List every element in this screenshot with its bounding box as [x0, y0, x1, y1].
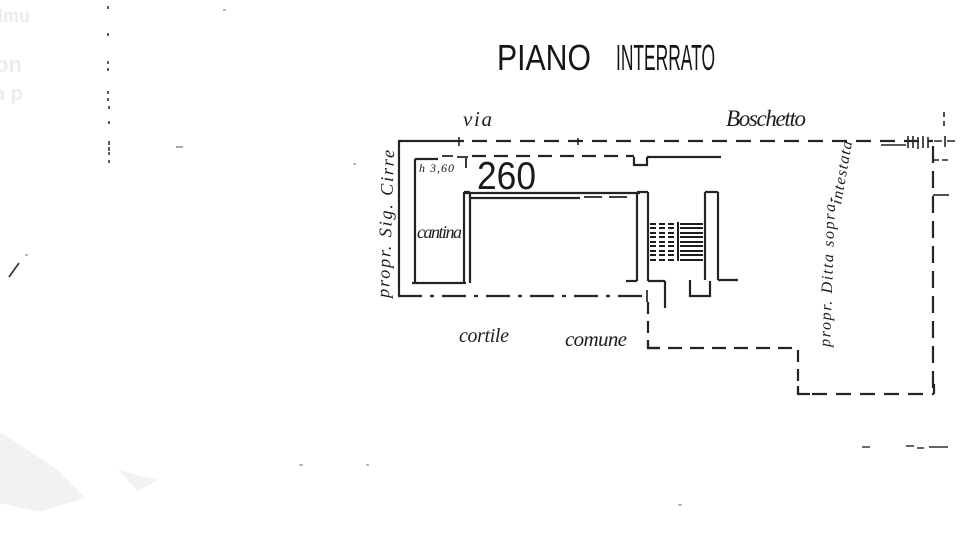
svg-text:Boschetto: Boschetto: [726, 106, 806, 131]
svg-text:on: on: [0, 52, 22, 77]
svg-text:comune: comune: [565, 327, 627, 351]
svg-text:a p: a p: [0, 83, 23, 105]
svg-text:h 3,60: h 3,60: [419, 161, 454, 175]
svg-text:intestata: intestata: [828, 140, 856, 206]
svg-text:cantina: cantina: [417, 222, 462, 242]
svg-text:tlmu: tlmu: [0, 6, 30, 26]
svg-text:propr. Ditta sopra-: propr. Ditta sopra-: [817, 197, 839, 349]
svg-text:260: 260: [477, 155, 536, 198]
svg-text:PIANO: PIANO: [497, 37, 591, 78]
svg-text:propr. Sig. Cirre: propr. Sig. Cirre: [373, 150, 398, 301]
svg-text:via: via: [463, 107, 492, 131]
svg-text:cortile: cortile: [459, 325, 509, 347]
svg-text:INTERRATO: INTERRATO: [616, 37, 715, 78]
